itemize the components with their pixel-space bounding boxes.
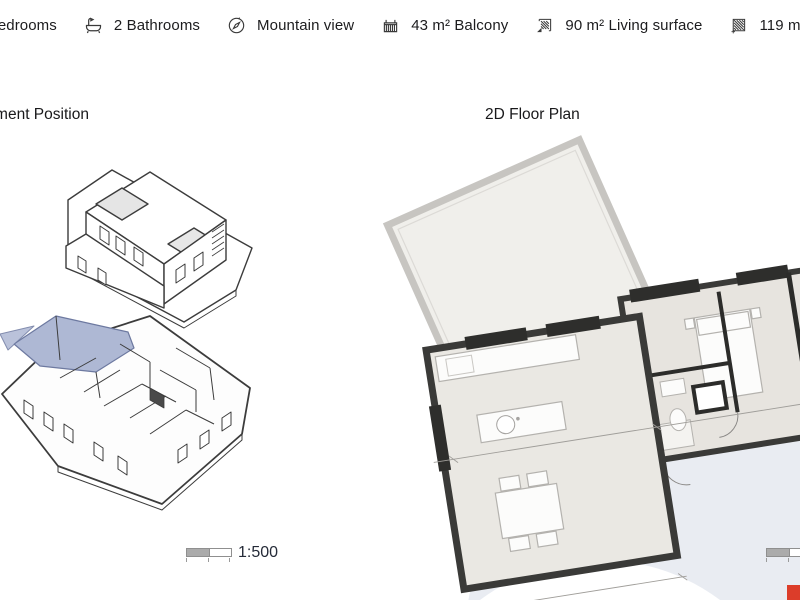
feature-total-surface: 119 m² Total surface (728, 15, 800, 36)
sink (660, 378, 686, 397)
property-expose-page: 2 Bedrooms 2 Bathrooms Mountain view (0, 0, 800, 600)
feature-label: 43 m² Balcony (411, 17, 508, 34)
compass-icon (226, 15, 247, 36)
living-wing (419, 310, 677, 591)
corner-button[interactable] (787, 585, 800, 600)
feature-label: 119 m² Total surface (759, 17, 800, 34)
feature-label: Mountain view (257, 17, 354, 34)
balcony-icon (380, 15, 401, 36)
feature-view: Mountain view (226, 15, 354, 36)
floor-plan-drawing (370, 130, 800, 600)
feature-bar: 2 Bedrooms 2 Bathrooms Mountain view (0, 11, 800, 39)
feature-label: 2 Bathrooms (114, 17, 200, 34)
apartment-position-title: Apartment Position (0, 106, 89, 124)
scale-label: 1:500 (238, 544, 278, 562)
feature-label: 90 m² Living surface (565, 17, 702, 34)
scale-bar (186, 548, 232, 564)
feature-bedrooms: 2 Bedrooms (0, 15, 57, 36)
bathtub-icon (83, 15, 104, 36)
isometric-building-drawing (0, 148, 280, 548)
scale-bar-right (766, 548, 800, 564)
floor-plan-title: 2D Floor Plan (485, 106, 580, 124)
feature-balcony: 43 m² Balcony (380, 15, 508, 36)
area-icon (728, 15, 749, 36)
shower (693, 382, 727, 412)
feature-bathrooms: 2 Bathrooms (83, 15, 200, 36)
feature-living-surface: 90 m² Living surface (534, 15, 702, 36)
feature-label: 2 Bedrooms (0, 17, 57, 34)
area-icon (534, 15, 555, 36)
